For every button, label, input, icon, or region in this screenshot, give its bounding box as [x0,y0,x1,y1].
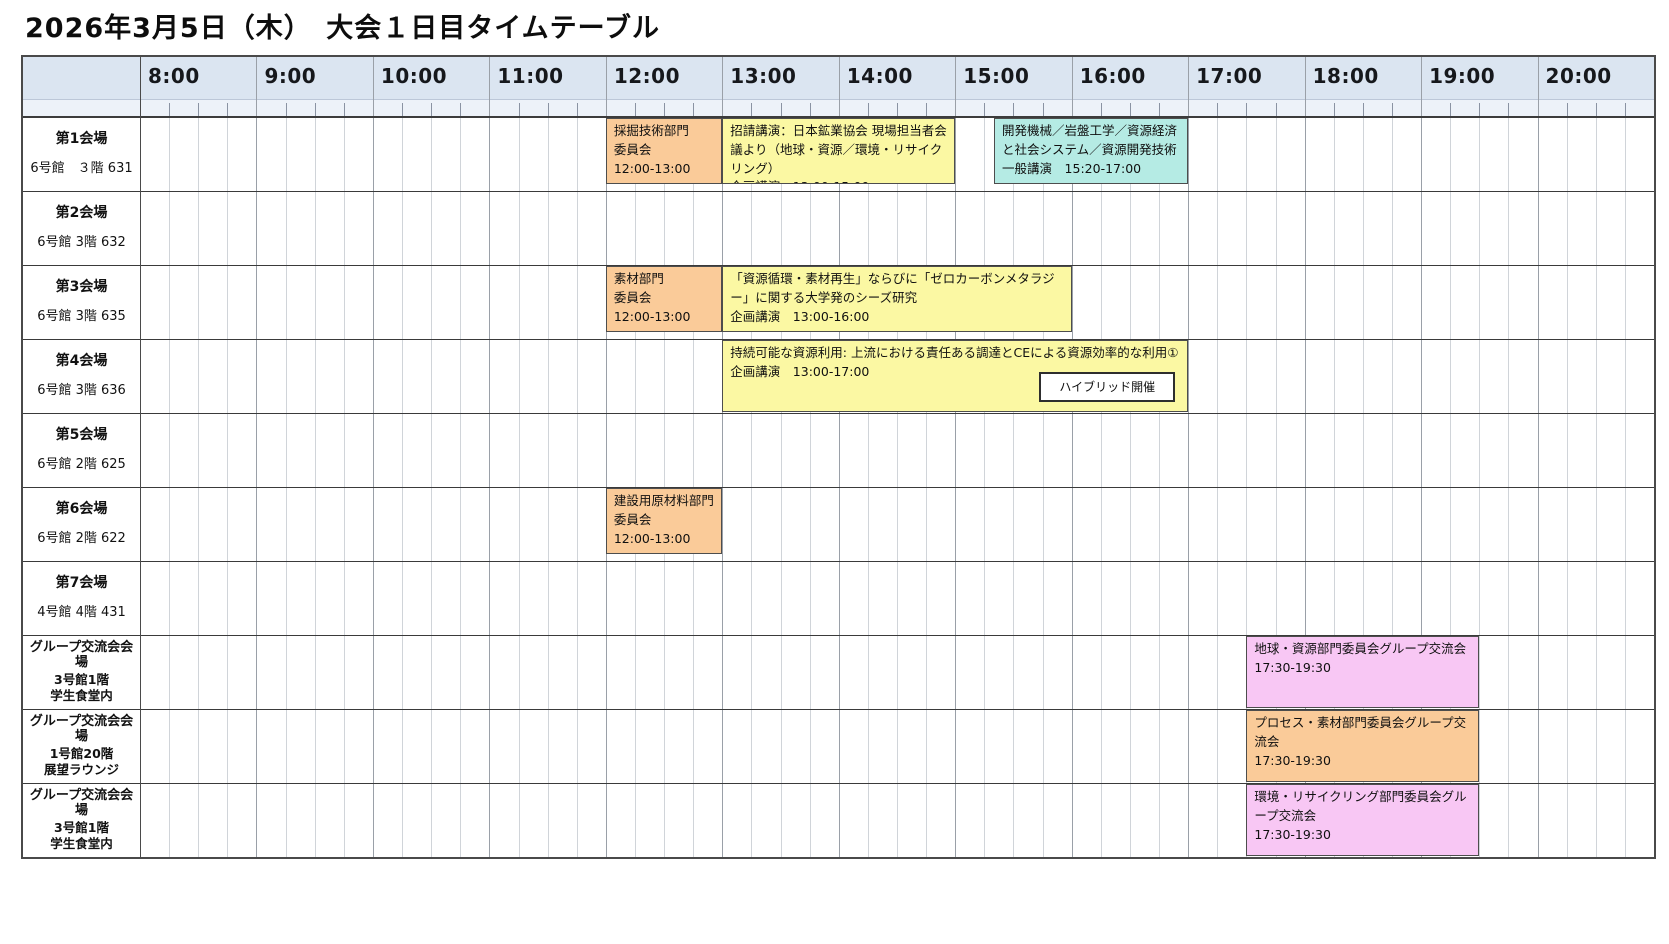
header-tick [227,103,228,117]
header-tick [315,103,316,117]
event-text-line: 素材部門 [614,270,714,289]
header-tick [1246,103,1247,117]
event-text-line: 採掘技術部門 [614,122,714,141]
header-tick [519,103,520,117]
venue-location: 3号館1階 [54,820,109,836]
header-tick [868,103,869,117]
venue-label-cell: 第5会場6号館 2階 625 [23,413,140,487]
header-tick [548,103,549,117]
row-separator [23,413,1654,414]
header-tick [460,103,461,117]
grid-line-hour [1188,57,1189,857]
venue-label-cell: 第4会場6号館 3階 636 [23,339,140,413]
header-tick [1508,103,1509,117]
header-tick [897,103,898,117]
event-block: 採掘技術部門委員会12:00-13:00 [606,118,722,184]
venue-location: 6号館 3階 636 [37,383,126,399]
page-title: 2026年3月5日（木） 大会１日目タイムテーブル [25,6,660,45]
hour-label: 14:00 [847,64,913,88]
header-tick [1013,103,1014,117]
venue-label-cell: グループ交流会会場3号館1階学生食堂内 [23,635,140,709]
event-text-line: 17:30-19:30 [1254,659,1471,678]
header-tick [1334,103,1335,117]
hour-label: 16:00 [1080,64,1146,88]
header-tick [751,103,752,117]
hour-label: 13:00 [730,64,796,88]
venue-name: 第6会場 [56,501,108,518]
venue-location: 学生食堂内 [50,836,113,852]
venue-label-cell: 第3会場6号館 3階 635 [23,265,140,339]
venue-label-cell: 第2会場6号館 3階 632 [23,191,140,265]
event-block: 環境・リサイクリング部門委員会グループ交流会17:30-19:30 [1246,784,1479,856]
header-tick [198,103,199,117]
header-tick [1130,103,1131,117]
header-tick [577,103,578,117]
event-text-line: 17:30-19:30 [1254,826,1471,845]
header-tick [1043,103,1044,117]
event-block: 開発機械／岩盤工学／資源経済と社会システム／資源開発技術一般講演 15:20-1… [994,118,1188,184]
header-tick [984,103,985,117]
event-text-line: 開発機械／岩盤工学／資源経済と社会システム／資源開発技術 [1002,122,1180,160]
header-tick [693,103,694,117]
row-separator [23,191,1654,192]
grid-line-hour [256,57,257,857]
header-tick [1276,103,1277,117]
event-text-line: 建設用原材料部門 [614,492,714,511]
header-tick [635,103,636,117]
event-block: 建設用原材料部門委員会12:00-13:00 [606,488,722,554]
venue-location: 1号館20階 [50,746,114,762]
venue-location: 6号館 ３階 631 [30,161,132,177]
header-tick [1479,103,1480,117]
event-text-line: 17:30-19:30 [1254,752,1471,771]
header-tick [344,103,345,117]
venue-name: グループ交流会会場 [26,788,137,819]
header-tick [1392,103,1393,117]
header-tick [810,103,811,117]
venue-location: 6号館 3階 635 [37,309,126,325]
venue-location: 4号館 4階 431 [37,605,126,621]
venue-location: 学生食堂内 [50,688,113,704]
hour-label: 20:00 [1546,64,1612,88]
event-text-line: 12:00-13:00 [614,160,714,179]
grid-line-hour [1538,57,1539,857]
event-text-line: 委員会 [614,289,714,308]
event-text-line: 持続可能な資源利用: 上流における責任ある調達とCEによる資源効率的な利用① [730,344,1180,363]
venue-label-cell: 第7会場4号館 4階 431 [23,561,140,635]
row-separator [23,561,1654,562]
header-tick [664,103,665,117]
hour-label: 17:00 [1196,64,1262,88]
venue-location: 6号館 3階 632 [37,235,126,251]
event-text-line: 一般講演 15:20-17:00 [1002,160,1180,179]
venue-label-cell: グループ交流会会場1号館20階展望ラウンジ [23,709,140,783]
header-tick [1567,103,1568,117]
venue-location: 3号館1階 [54,672,109,688]
header-tick [286,103,287,117]
venue-location: 展望ラウンジ [44,762,119,778]
venue-name: 第1会場 [56,131,108,148]
event-text-line: プロセス・素材部門委員会グループ交流会 [1254,714,1471,752]
venue-name: 第3会場 [56,279,108,296]
event-block: プロセス・素材部門委員会グループ交流会17:30-19:30 [1246,710,1479,782]
event-block: 地球・資源部門委員会グループ交流会17:30-19:30 [1246,636,1479,708]
event-text-line: 環境・リサイクリング部門委員会グループ交流会 [1254,788,1471,826]
header-tick [1159,103,1160,117]
venue-label-cell: グループ交流会会場3号館1階学生食堂内 [23,783,140,857]
hour-label: 11:00 [497,64,563,88]
venue-label-cell: 第1会場6号館 ３階 631 [23,117,140,191]
event-text-line: 企画講演 13:00-16:00 [730,308,1063,327]
header-tick [1625,103,1626,117]
event-block: 「資源循環・素材再生」ならびに「ゼロカーボンメタラジー」に関する大学発のシーズ研… [722,266,1071,332]
timetable: 8:009:0010:0011:0012:0013:0014:0015:0016… [23,57,1654,857]
venue-name: 第7会場 [56,575,108,592]
header-tick [781,103,782,117]
grid-line-hour [489,57,490,857]
event-text-line: 招請講演：日本鉱業協会 現場担当者会議より（地球・資源／環境・リサイクリング） [730,122,947,178]
venue-name: 第5会場 [56,427,108,444]
hour-label: 15:00 [963,64,1029,88]
event-block: 招請講演：日本鉱業協会 現場担当者会議より（地球・資源／環境・リサイクリング）企… [722,118,955,184]
hybrid-badge: ハイブリッド開催 [1039,372,1175,402]
venue-location: 6号館 2階 622 [37,531,126,547]
header-tick [1450,103,1451,117]
header-tick [1363,103,1364,117]
hour-label: 18:00 [1313,64,1379,88]
row-separator [23,487,1654,488]
hour-label: 12:00 [614,64,680,88]
header-tick [402,103,403,117]
event-text-line: 「資源循環・素材再生」ならびに「ゼロカーボンメタラジー」に関する大学発のシーズ研… [730,270,1063,308]
event-text-line: 地球・資源部門委員会グループ交流会 [1254,640,1471,659]
venue-name: グループ交流会会場 [26,640,137,671]
venue-location: 6号館 2階 625 [37,457,126,473]
header-tick [169,103,170,117]
header-tick [1101,103,1102,117]
event-text-line: 企画講演 13:00-15:00 [730,178,947,184]
event-text-line: 12:00-13:00 [614,530,714,549]
venue-name: 第2会場 [56,205,108,222]
event-text-line: 委員会 [614,511,714,530]
event-text-line: 委員会 [614,141,714,160]
hour-label: 10:00 [381,64,447,88]
header-tick [431,103,432,117]
header-tick [1217,103,1218,117]
hour-label: 9:00 [264,64,316,88]
grid-line-hour [373,57,374,857]
venue-name: グループ交流会会場 [26,714,137,745]
grid-line-hour [955,57,956,857]
event-block: 素材部門委員会12:00-13:00 [606,266,722,332]
venue-label-cell: 第6会場6号館 2階 622 [23,487,140,561]
venue-name: 第4会場 [56,353,108,370]
header-tick [926,103,927,117]
hour-label: 19:00 [1429,64,1495,88]
label-column-border [140,57,141,857]
event-text-line: 12:00-13:00 [614,308,714,327]
header-tick [1596,103,1597,117]
hour-label: 8:00 [148,64,200,88]
event-block: 持続可能な資源利用: 上流における責任ある調達とCEによる資源効率的な利用①企画… [722,340,1188,412]
